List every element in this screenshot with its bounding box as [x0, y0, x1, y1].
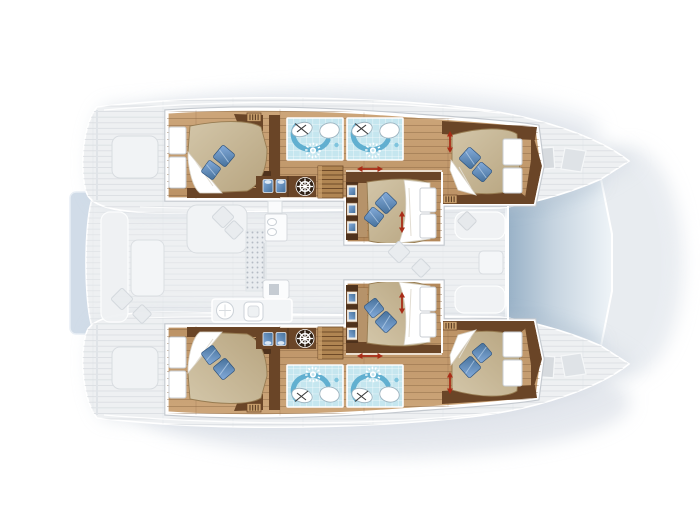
cooktop-inner — [248, 306, 259, 317]
galley-locker — [268, 201, 282, 213]
cockpit-table — [131, 240, 164, 296]
bow-bench — [455, 286, 505, 313]
sink-bowl — [268, 219, 277, 226]
bow-table — [479, 251, 503, 274]
catamaran-floor-plan: Catamaran interior layout plan — top vie… — [0, 0, 700, 525]
sink-bowl — [268, 229, 277, 236]
floor-plan-canvas: Catamaran interior layout plan — top vie… — [0, 0, 700, 525]
stove-burner — [269, 284, 279, 295]
galley-sink-unit — [265, 214, 287, 241]
